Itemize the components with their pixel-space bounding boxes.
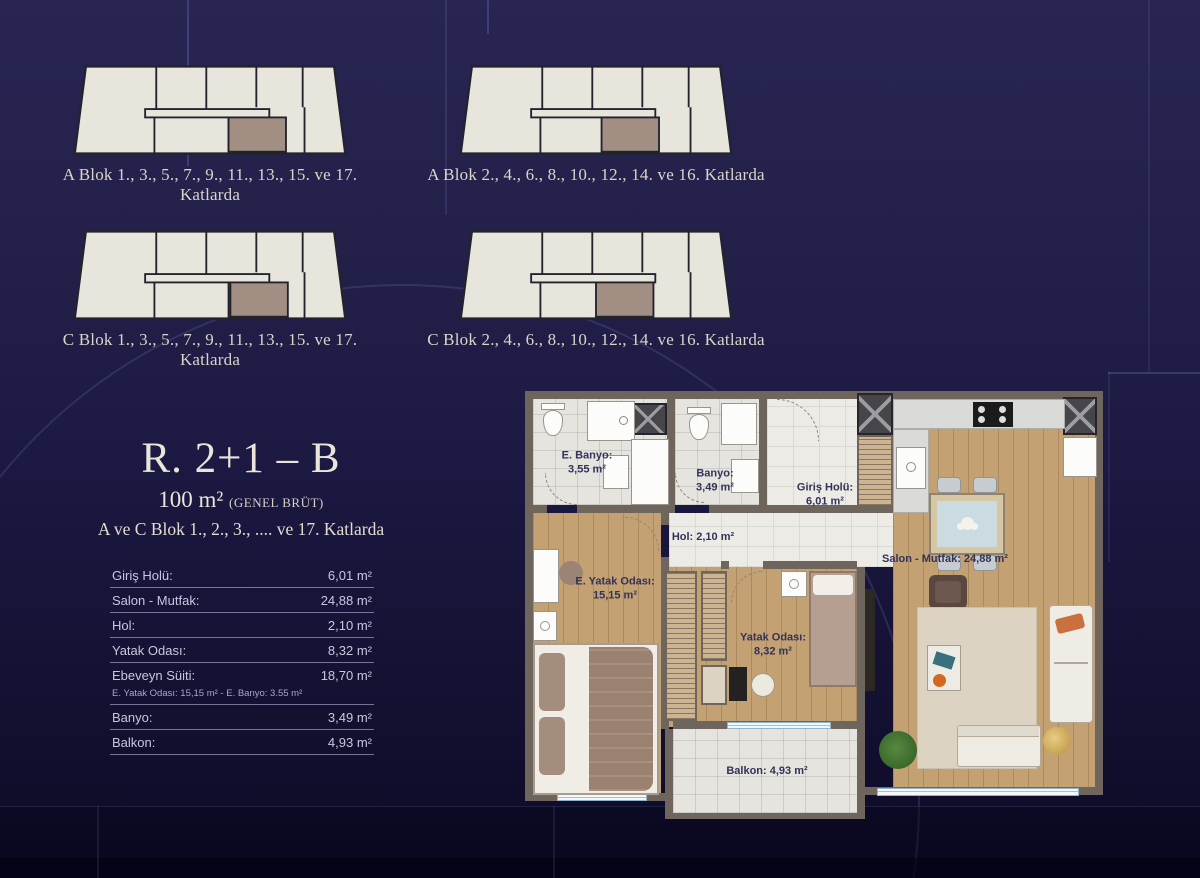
chaise-sofa: [1049, 605, 1093, 723]
brochure-page: A Blok 1., 3., 5., 7., 9., 11., 13., 15.…: [0, 0, 1200, 878]
magazine: [932, 651, 955, 670]
block-caption: A Blok 1., 3., 5., 7., 9., 11., 13., 15.…: [38, 165, 382, 205]
table-row: Salon - Mutfak: 24,88 m²: [110, 588, 374, 613]
table-row: Ebeveyn Süiti: 18,70 m²: [110, 663, 374, 687]
wall-segment: [533, 505, 547, 513]
wall-segment: [665, 729, 673, 819]
highlighted-unit: [229, 117, 286, 151]
row-value: 2,10 m²: [328, 618, 372, 633]
room-name: E. Banyo:: [562, 449, 613, 463]
room-area: 3,49 m²: [696, 481, 734, 495]
row-value: 4,93 m²: [328, 735, 372, 750]
room-area: 6,01 m²: [797, 495, 853, 509]
lamp-icon: [540, 621, 550, 631]
bed-blanket: [589, 647, 653, 791]
window: [877, 788, 1079, 796]
burner: [999, 416, 1006, 423]
pillow: [813, 575, 853, 595]
block-caption: A Blok 2., 4., 6., 8., 10., 12., 14. ve …: [424, 165, 768, 185]
highlighted-unit: [602, 117, 659, 151]
window: [557, 794, 647, 801]
fridge: [1063, 437, 1097, 477]
armchair: [929, 575, 967, 609]
decor-bowl: [933, 674, 946, 687]
table-row: Balkon: 4,93 m²: [110, 730, 374, 755]
dining-table: [929, 493, 1005, 555]
decorative-line: [487, 0, 489, 34]
burner: [978, 416, 985, 423]
pillow: [539, 717, 565, 775]
wall-segment: [661, 513, 669, 525]
room-area: 8,32 m²: [740, 645, 806, 659]
wardrobe: [665, 571, 697, 721]
bottom-band-dark: [0, 858, 1200, 878]
lamp-icon: [789, 579, 799, 589]
wall-segment: [763, 561, 857, 569]
window: [727, 722, 831, 729]
table-row: Hol: 2,10 m²: [110, 613, 374, 638]
decorative-line: [1108, 372, 1200, 374]
room-area: 3,55 m²: [562, 463, 613, 477]
double-bed: [533, 643, 659, 795]
room-label-yatak: Yatak Odası: 8,32 m²: [740, 631, 806, 659]
cooktop: [973, 402, 1013, 427]
shower-stall: [721, 403, 757, 445]
highlighted-unit: [596, 282, 653, 316]
kitchen-sink: [896, 447, 926, 489]
cabinet: [701, 665, 727, 705]
sofa-seam: [1054, 662, 1088, 664]
room-label-salon-mutfak: Salon - Mutfak: 24,88 m²: [882, 553, 1008, 567]
decorative-line: [1148, 0, 1150, 372]
unit-info: R. 2+1 – B 100 m² (GENEL BRÜT) A ve C Bl…: [55, 436, 427, 540]
dining-chair: [937, 477, 961, 493]
desk: [729, 667, 747, 701]
room-name: Yatak Odası:: [740, 631, 806, 645]
area-table: Giriş Holü: 6,01 m² Salon - Mutfak: 24,8…: [110, 563, 374, 755]
wall-segment: [857, 567, 865, 727]
coffee-table: [927, 645, 961, 691]
sink-drain: [906, 462, 916, 472]
table-row: Giriş Holü: 6,01 m²: [110, 563, 374, 588]
wall-segment: [665, 813, 861, 819]
decorative-line: [1108, 372, 1110, 562]
gross-area-value: 100 m²: [158, 487, 223, 512]
side-table: [1043, 727, 1071, 755]
burner: [999, 406, 1006, 413]
shaft: [857, 393, 893, 435]
block-diagram-a-even: A Blok 2., 4., 6., 8., 10., 12., 14. ve …: [424, 60, 768, 185]
shaft: [1063, 397, 1097, 435]
row-label: Hol:: [112, 618, 135, 633]
room-label-giris-holu: Giriş Holü: 6,01 m²: [797, 481, 853, 509]
highlighted-unit: [230, 282, 287, 316]
single-bed: [809, 571, 857, 687]
room-name: Banyo:: [696, 467, 734, 481]
burner: [978, 406, 985, 413]
wall-segment: [525, 391, 533, 801]
bathtub: [587, 401, 635, 441]
building-footprint-icon: [457, 225, 735, 325]
table-row-note: E. Yatak Odası: 15,15 m² - E. Banyo: 3.5…: [110, 687, 374, 705]
armchair-cushion: [935, 581, 961, 603]
row-value: 8,32 m²: [328, 643, 372, 658]
building-footprint-icon: [457, 60, 735, 160]
row-value: 18,70 m²: [321, 668, 372, 683]
block-diagram-a-odd: A Blok 1., 3., 5., 7., 9., 11., 13., 15.…: [38, 60, 382, 205]
row-value: 6,01 m²: [328, 568, 372, 583]
row-label: Yatak Odası:: [112, 643, 186, 658]
room-name: Giriş Holü:: [797, 481, 853, 495]
row-label: Giriş Holü:: [112, 568, 173, 583]
unit-title: R. 2+1 – B: [55, 436, 427, 481]
nightstand: [781, 571, 807, 597]
room-label-balkon: Balkon: 4,93 m²: [726, 765, 807, 779]
pillow: [539, 653, 565, 711]
sofa-back: [958, 726, 1039, 737]
table-row: Yatak Odası: 8,32 m²: [110, 638, 374, 663]
row-label: Balkon:: [112, 735, 155, 750]
flower-centerpiece: [961, 517, 974, 530]
room-name: E. Yatak Odası:: [575, 575, 654, 589]
plant: [879, 731, 917, 769]
sofa: [957, 725, 1041, 767]
nightstand: [533, 611, 557, 641]
block-diagram-c-even: C Blok 2., 4., 6., 8., 10., 12., 14. ve …: [424, 225, 768, 350]
room-label-hol: Hol: 2,10 m²: [672, 531, 734, 545]
chair: [751, 673, 775, 697]
tv-unit: [865, 589, 875, 691]
unit-floors: A ve C Blok 1., 2., 3., .... ve 17. Katl…: [55, 519, 427, 540]
block-diagram-c-odd: C Blok 1., 3., 5., 7., 9., 11., 13., 15.…: [38, 225, 382, 370]
room-label-e-yatak: E. Yatak Odası: 15,15 m²: [575, 575, 654, 603]
throw-pillow: [1055, 613, 1086, 634]
building-footprint-icon: [71, 60, 349, 160]
row-label: Ebeveyn Süiti:: [112, 668, 195, 683]
wall-segment: [857, 727, 865, 819]
row-value: 3,49 m²: [328, 710, 372, 725]
wall-segment: [577, 505, 675, 513]
floorplan: E. Banyo: 3,55 m² Banyo: 3,49 m² Giriş H…: [525, 383, 1105, 823]
gross-area-label: (GENEL BRÜT): [229, 495, 324, 510]
row-value: 24,88 m²: [321, 593, 372, 608]
dresser: [533, 549, 559, 603]
room-area: 15,15 m²: [575, 589, 654, 603]
table-row: Banyo: 3,49 m²: [110, 705, 374, 730]
room-label-e-banyo: E. Banyo: 3,55 m²: [562, 449, 613, 477]
shower-stall: [631, 439, 669, 505]
block-caption: C Blok 1., 3., 5., 7., 9., 11., 13., 15.…: [38, 330, 382, 370]
wardrobe: [701, 571, 727, 661]
unit-gross-area: 100 m² (GENEL BRÜT): [55, 487, 427, 513]
wall-segment: [721, 561, 729, 569]
toilet-tank: [687, 407, 711, 414]
wall-segment: [759, 399, 767, 505]
building-footprint-icon: [71, 225, 349, 325]
entry-wardrobe: [857, 435, 893, 507]
wall-segment: [525, 391, 1103, 399]
room-label-banyo: Banyo: 3,49 m²: [696, 467, 734, 495]
toilet-tank: [541, 403, 565, 410]
shower-head-icon: [619, 416, 628, 425]
bathroom-sink: [731, 459, 759, 493]
decorative-line: [97, 806, 99, 878]
row-label: Banyo:: [112, 710, 152, 725]
row-label: Salon - Mutfak:: [112, 593, 199, 608]
block-caption: C Blok 2., 4., 6., 8., 10., 12., 14. ve …: [424, 330, 768, 350]
dining-chair: [973, 477, 997, 493]
